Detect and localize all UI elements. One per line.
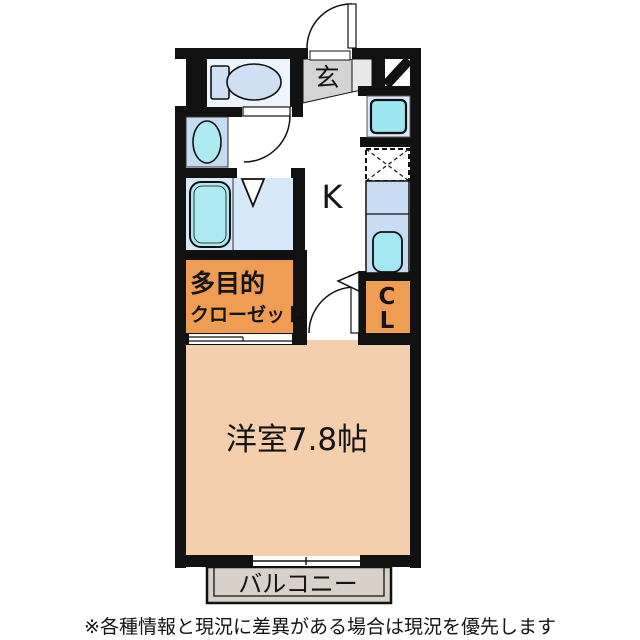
entrance-sill	[310, 51, 350, 60]
closet-sliding-door	[189, 334, 292, 344]
balcony-label: バルコニー	[238, 570, 358, 598]
balcony-sliding-window	[253, 556, 360, 566]
kitchen-label: K	[322, 178, 344, 216]
entrance-door	[307, 4, 356, 48]
disclaimer-text: ※各種情報と現況に差異がある場合は現況を優先します	[84, 616, 556, 638]
kitchen-room-door	[309, 272, 359, 333]
toilet-door-leaf	[243, 107, 290, 116]
refrigerator-space-icon	[366, 149, 409, 181]
toilet-window	[175, 59, 186, 106]
multipurpose-closet-label-line2: クローゼット	[190, 303, 304, 326]
washing-machine-icon	[367, 96, 410, 137]
floorplan: 玄 K 多目的 クローゼット C L 洋室7.8帖 バルコニー ※各種情報と現況…	[0, 0, 640, 640]
kitchen-counter-icon	[366, 181, 409, 273]
kitchen-sink-icon	[373, 232, 402, 272]
toilet-door	[243, 107, 290, 162]
cl-label-line1: C	[379, 284, 396, 310]
entrance-label: 玄	[314, 63, 339, 92]
void-diagonal-symbol	[385, 59, 410, 86]
bath-door-opening	[237, 168, 291, 178]
toilet-icon	[211, 64, 281, 100]
bathtub-icon	[190, 178, 233, 250]
western-room-label: 洋室7.8帖	[226, 422, 368, 458]
kitchen-room-door-leaf	[351, 285, 359, 333]
entrance-door-leaf	[348, 4, 356, 48]
washbasin-icon	[186, 117, 228, 167]
cl-label-line2: L	[380, 308, 395, 334]
multipurpose-closet-label-line1: 多目的	[190, 269, 265, 298]
